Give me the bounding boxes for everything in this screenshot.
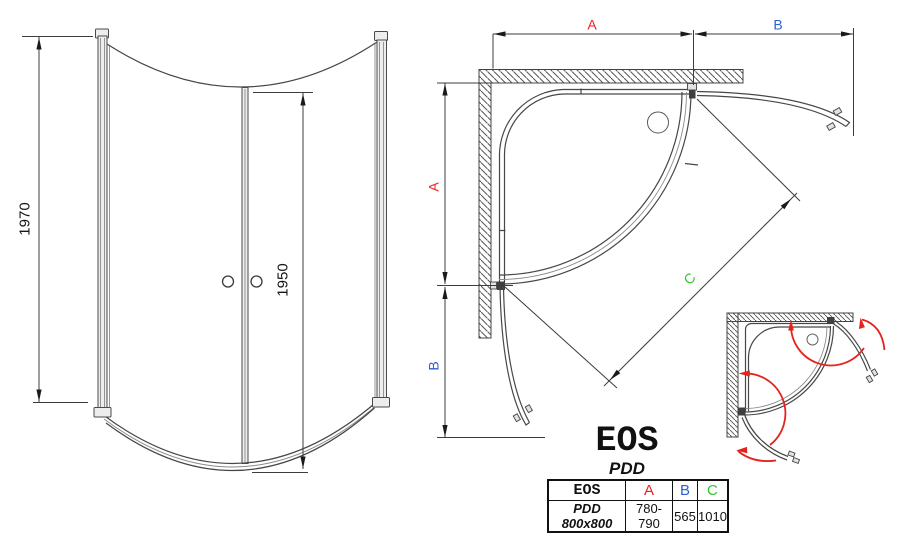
left-post [98, 36, 107, 414]
spec-table-header-row: EOS A B C [548, 480, 728, 501]
spec-table-data-row: PDD 800x800 780-790 565 1010 [548, 501, 728, 533]
spec-header-model: EOS [548, 480, 626, 501]
right-post-foot [373, 398, 390, 408]
dim-b-left-label: B [426, 361, 442, 370]
schematic-top-hinge [827, 317, 835, 324]
schematic-bottom-hinge [738, 408, 746, 416]
spec-c-value: 1010 [698, 501, 728, 533]
dim-a-top-label: A [587, 17, 597, 33]
spec-header-b: B [673, 480, 698, 501]
left-wall [479, 83, 491, 338]
front-view: 1970 1950 [17, 29, 390, 473]
plan-dim-c: C [505, 99, 800, 388]
bottom-door-open [504, 287, 530, 423]
shower-enclosure-technical-drawing: 1970 1950 [0, 0, 900, 553]
dim-1970-label: 1970 [17, 202, 34, 235]
dim-c-label: C [680, 269, 698, 287]
spec-model-value: PDD 800x800 [548, 501, 626, 533]
tray-front-arc [499, 92, 691, 284]
spec-a-value: 780-790 [626, 501, 673, 533]
swing-schematic [727, 313, 885, 463]
spec-b-value: 565 [673, 501, 698, 533]
drawing-svg: 1970 1950 [0, 0, 900, 553]
schematic-bottom-door [745, 415, 789, 457]
dim-a-left-label: A [426, 182, 442, 192]
plan-tray [491, 84, 699, 291]
logo-pdd-text: PDD [552, 460, 702, 477]
left-door-knob [223, 276, 234, 287]
spec-header-a: A [626, 480, 673, 501]
brand-logo: EOS PDD [552, 424, 702, 477]
front-dim-total-height: 1970 [17, 37, 94, 403]
schematic-drain [807, 334, 818, 345]
right-door-open [697, 96, 846, 127]
logo-eos-text: EOS [552, 424, 702, 459]
glass-top-edge [107, 42, 377, 87]
dim-1950-label: 1950 [275, 263, 292, 296]
bottom-door-handle [513, 414, 520, 422]
swing-arrows [736, 318, 885, 462]
drain-circle [648, 112, 669, 133]
left-post-foot [94, 408, 111, 418]
top-hinge [688, 84, 697, 91]
dim-b-top-label: B [773, 17, 782, 33]
schematic-right-door [833, 324, 868, 372]
right-post [377, 40, 387, 399]
top-wall [479, 70, 743, 84]
right-door-knob [251, 276, 262, 287]
plan-view: A B A B C [426, 17, 854, 438]
spec-table: EOS A B C PDD 800x800 780-790 565 1010 [547, 479, 729, 533]
right-post-cap [375, 32, 388, 41]
tray-rim-front [104, 402, 377, 464]
front-frame [94, 29, 390, 471]
schematic-left-wall [727, 313, 738, 437]
spec-header-c: C [698, 480, 728, 501]
